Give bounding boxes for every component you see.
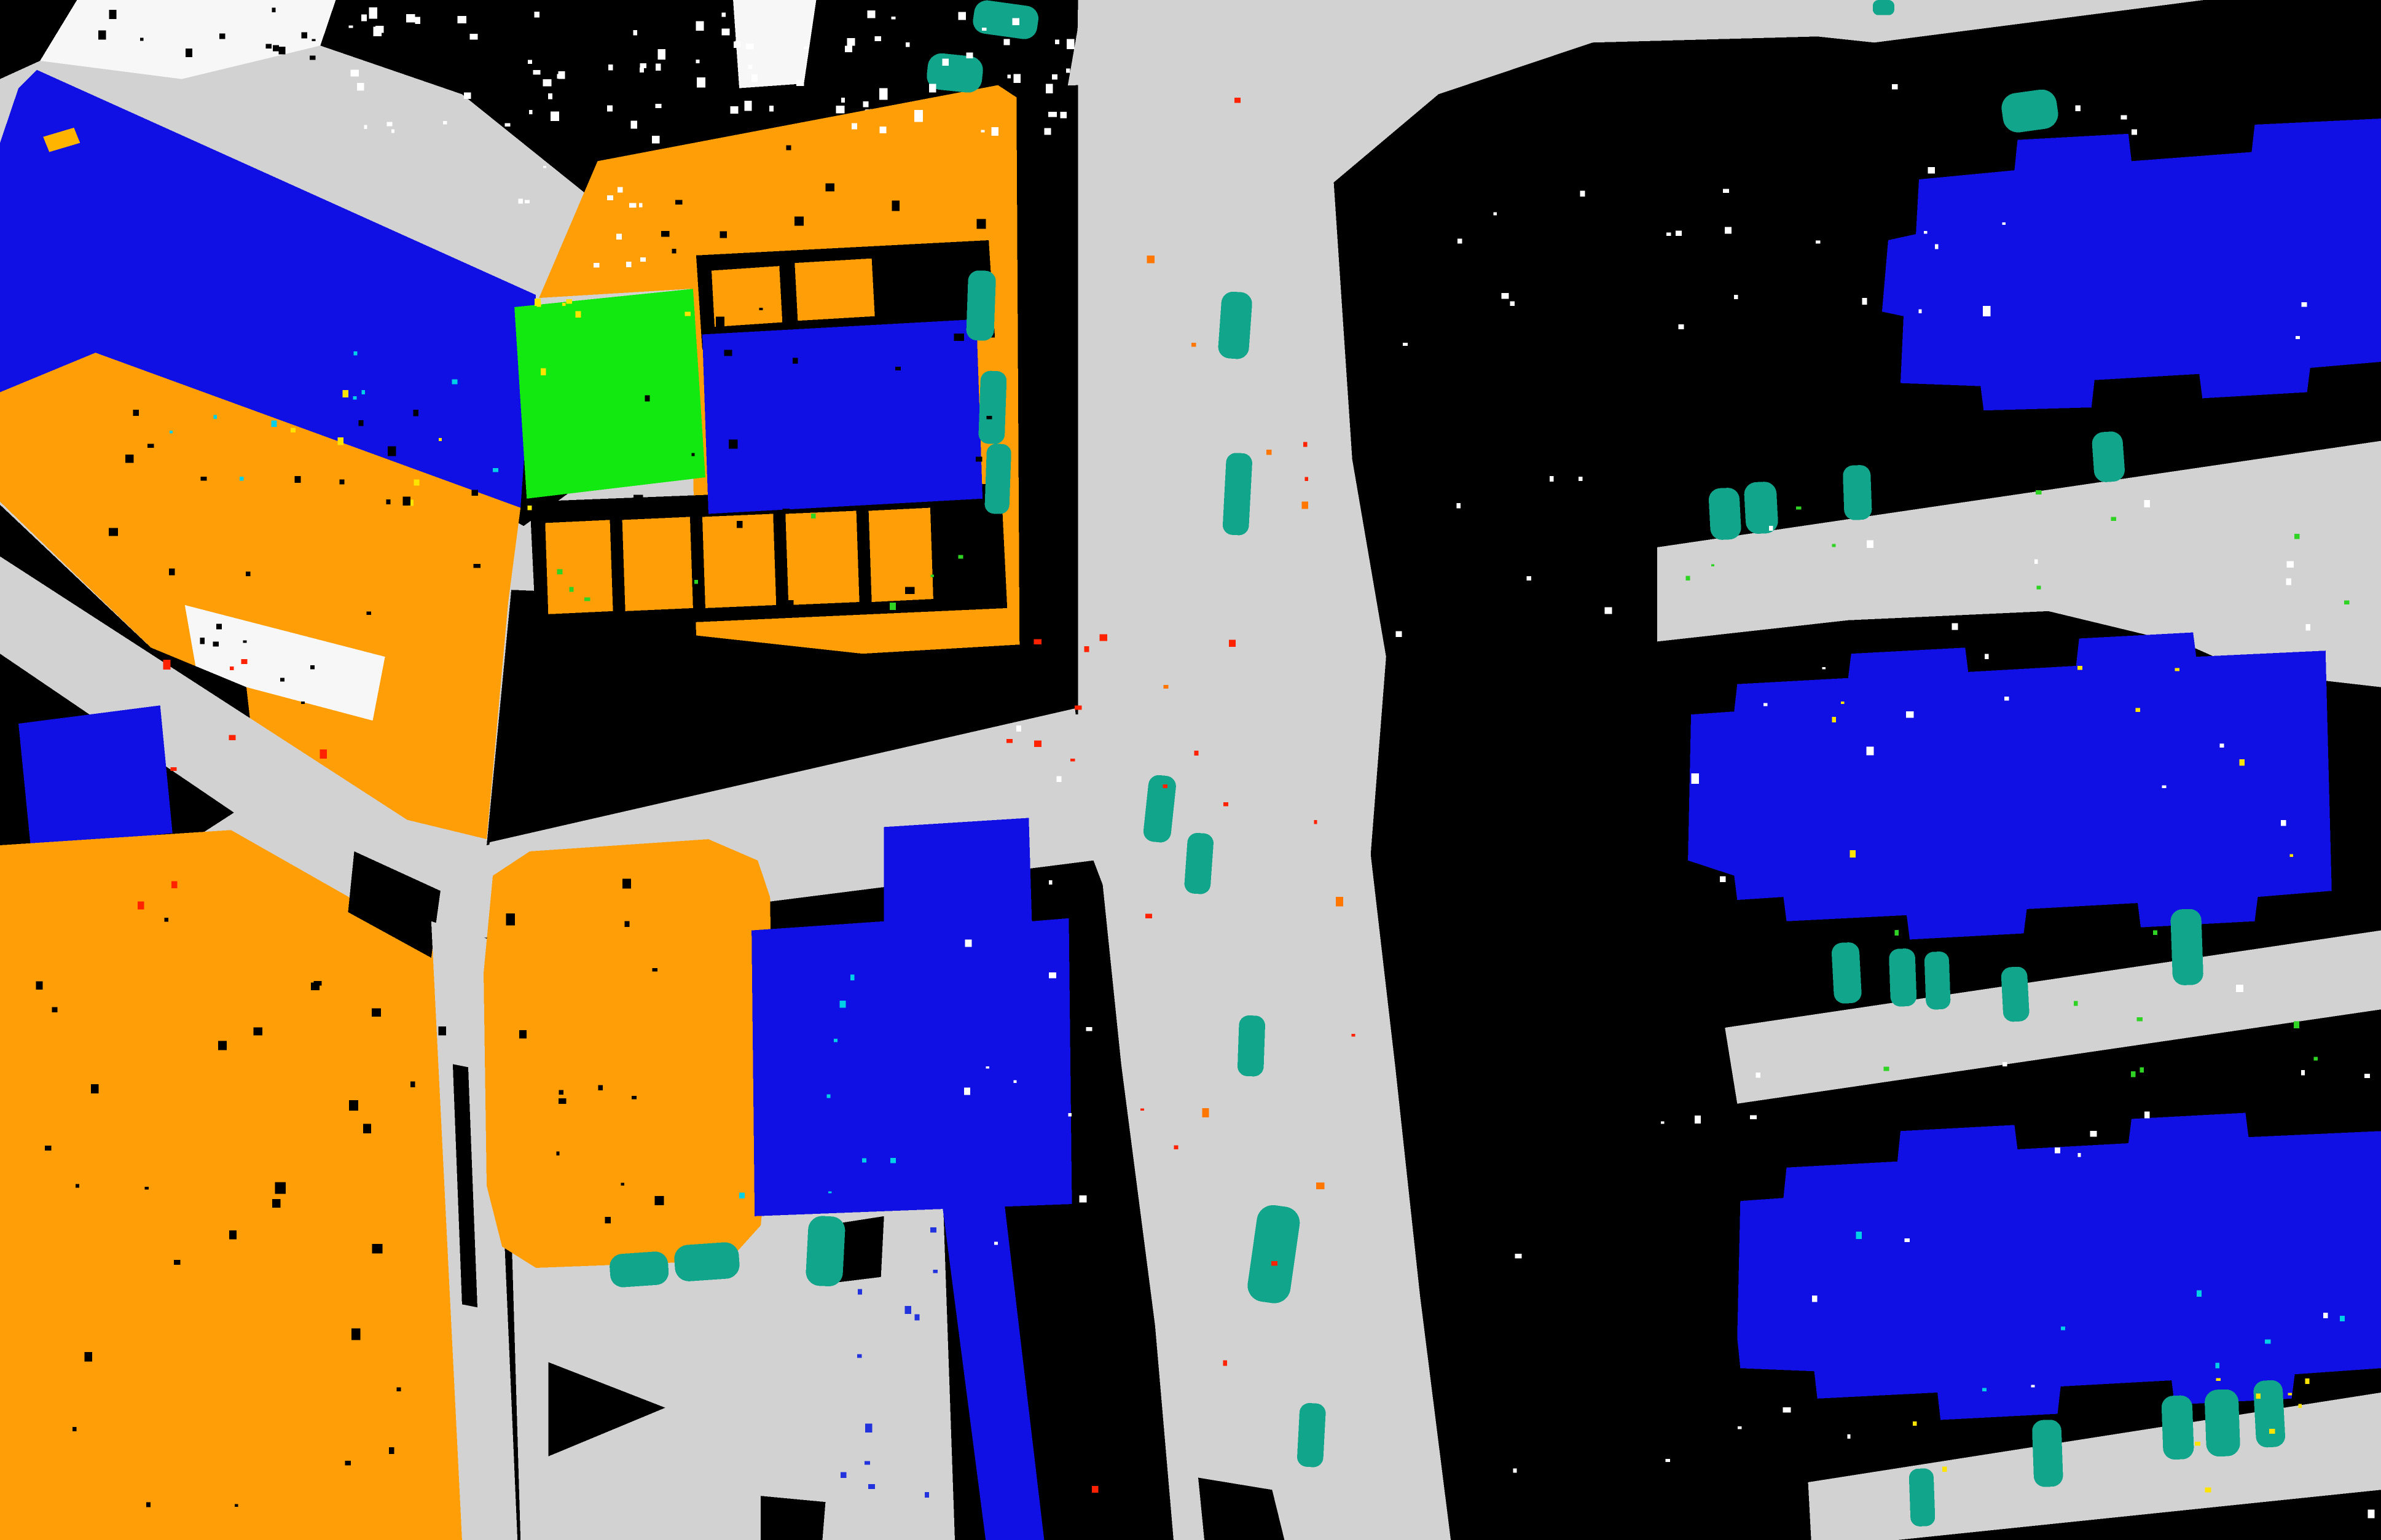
speck [301,702,305,704]
speck [506,913,515,926]
speck [976,456,983,461]
car-row-a-3-icon [1843,465,1872,521]
region-white-patch-top-center [733,0,816,88]
speck [310,55,316,60]
speck [685,312,691,316]
speck [519,1030,527,1039]
speck [1191,343,1196,346]
speck [171,881,178,888]
speck [1832,544,1836,547]
speck [1685,576,1690,580]
car-row-b-2-icon [1889,948,1917,1007]
speck [656,63,661,71]
speck [1147,256,1155,264]
speck [794,217,804,226]
speck [1303,442,1307,447]
speck [720,232,727,238]
speck [2195,1442,2200,1445]
speck [825,183,834,191]
car-road-right-edge-icon [1222,452,1253,536]
speck [1720,877,1725,882]
speck [2132,129,2137,135]
speck [2140,1068,2144,1073]
speck [841,98,845,103]
speck [2136,708,2140,712]
speck [626,262,632,267]
car-row-b-5-icon [2170,909,2203,985]
speck [1862,298,1867,305]
speck [2136,1017,2143,1021]
speck [559,1098,566,1104]
speck [1163,784,1168,788]
speck [1140,1108,1144,1111]
speck [2344,601,2350,605]
speck [1983,306,1991,316]
speck [235,1504,238,1506]
speck [1100,635,1107,641]
speck [2144,500,2151,507]
speck [240,477,244,480]
speck [959,12,966,20]
speck [576,311,581,318]
car-row-a-1-icon [1708,487,1742,541]
car-plaza-3-icon [805,1215,845,1287]
region-blue-flat-roof-left [18,705,173,848]
speck [1692,773,1699,784]
speck [551,112,559,121]
speck [850,975,855,980]
speck [852,123,857,130]
speck [457,16,466,23]
speck [272,1199,281,1208]
speck [406,14,415,22]
speck [640,68,644,72]
speck [858,1289,862,1294]
speck [868,1484,875,1489]
speck [109,10,116,19]
speck [1904,1238,1909,1242]
car-row-b-4-icon [2001,966,2030,1022]
speck [229,735,236,740]
speck [2034,559,2038,564]
speck [410,1081,415,1087]
speck [372,1244,383,1253]
speck [1711,565,1714,566]
speck [672,249,676,253]
speck [2269,1429,2275,1434]
speck [541,368,546,375]
speck [1832,717,1836,722]
speck [125,455,133,463]
speck [857,1354,861,1358]
speck [2294,1021,2299,1028]
speck [2364,1074,2370,1078]
speck [271,421,277,428]
speck [1194,751,1199,756]
speck [391,129,394,133]
speck [2299,1404,2302,1408]
speck [841,1472,847,1478]
speck [1750,1115,1757,1119]
speck [2153,931,2157,935]
speck [675,200,683,205]
speck [2301,302,2307,307]
speck [1665,1459,1669,1462]
speck [1052,74,1057,79]
speck [879,88,888,100]
speck [138,901,144,909]
speck [605,1217,611,1224]
speck [1057,776,1062,782]
speck [535,12,539,17]
speck [1493,213,1497,216]
speck [965,940,972,947]
speck [2290,854,2294,857]
speck [358,420,363,426]
car-road-mid-3-icon [1184,832,1215,895]
speck [361,15,367,21]
speck [1080,1195,1087,1202]
speck [2002,222,2006,225]
speck [2031,1385,2035,1388]
speck [2323,1313,2328,1318]
speck [1229,640,1236,647]
speck [1457,238,1462,243]
speck [1003,39,1010,45]
segmentation-svg [0,0,2381,1540]
speck [1942,1466,1947,1472]
car-complex-edge-2-icon [978,370,1007,444]
speck [294,476,300,483]
region-orange-cell-bottom-5 [869,508,933,602]
speck [2314,1057,2318,1061]
speck [1314,820,1317,824]
speck [631,121,637,129]
speck [186,49,192,57]
speck [52,1007,58,1012]
speck [929,84,936,92]
speck [213,641,219,646]
speck [353,396,356,399]
region-grass-lawn-square [514,289,705,499]
speck [374,26,382,36]
speck [417,937,423,945]
speck [493,468,498,472]
speck [528,60,532,64]
speck [1847,1434,1850,1439]
speck [1006,739,1013,743]
speck [744,101,751,111]
region-orange-cell-bottom-2 [622,517,693,611]
speck [1738,1426,1741,1429]
speck [1302,502,1308,509]
speck [200,477,206,480]
speck [1049,972,1056,979]
speck [351,70,359,77]
speck [624,921,629,927]
car-row-c-1-icon [1908,1468,1935,1526]
speck [357,83,364,90]
speck [696,60,700,63]
speck [1395,631,1402,637]
speck [633,30,638,35]
speck [2162,785,2166,788]
speck [608,64,613,70]
speck [273,45,279,52]
speck [396,1388,401,1391]
speck [1841,702,1845,704]
speck [1913,1421,1917,1426]
speck [1513,1468,1517,1472]
region-orange-cell-bottom-1 [545,520,613,614]
speck [863,101,869,107]
speck [868,10,876,18]
speck [241,659,248,664]
region-black-blob-bottom-center [761,1496,825,1540]
speck [229,1230,237,1240]
speck [2294,534,2299,539]
speck [536,302,541,307]
car-complex-edge-1-icon [966,270,996,341]
speck [1016,725,1021,732]
speck [109,528,118,536]
speck [214,415,218,419]
speck [291,428,296,432]
speck [1604,607,1612,614]
speck [533,70,540,75]
speck [981,130,984,133]
speck [2286,579,2291,585]
speck [1695,1116,1701,1124]
speck [737,521,742,528]
speck [1951,623,1958,630]
speck [639,203,643,207]
speck [834,1039,837,1042]
speck [1763,703,1768,706]
speck [931,575,934,577]
speck [98,31,106,40]
speck [1867,541,1873,548]
speck [845,45,852,52]
speck [782,509,790,514]
speck [925,1492,929,1498]
speck [804,47,809,49]
speck [439,438,442,441]
speck [1202,1108,1209,1117]
speck [45,1146,52,1151]
speck [987,416,992,420]
speck [389,1447,394,1454]
speck [2077,666,2082,670]
speck [759,308,763,310]
speck [1007,75,1011,79]
speck [1666,232,1671,236]
speck [787,600,794,605]
speck [828,1192,831,1194]
speck [1234,98,1241,103]
speck [73,1427,77,1431]
speck [607,106,613,112]
speck [621,1183,624,1186]
speck [1676,230,1682,235]
speck [1174,1146,1178,1150]
speck [992,127,999,136]
speck [739,1192,745,1198]
speck [443,121,447,124]
speck [729,439,738,448]
speck [414,479,419,485]
speck [2061,1327,2065,1331]
speck [2216,1363,2219,1369]
speck [254,1028,262,1036]
car-road-bottom-icon [1296,1402,1326,1468]
speck [914,1315,919,1321]
speck [559,71,565,79]
speck [826,1095,830,1098]
speck [2076,105,2081,111]
speck [1725,227,1732,234]
speck [342,390,348,397]
speck [2002,1062,2007,1066]
speck [1044,128,1051,135]
speck [751,74,758,82]
speck [964,1088,970,1095]
speck [594,263,599,267]
speck [2131,1071,2136,1077]
speck [891,17,895,19]
speck [364,125,367,128]
speck [2205,1487,2211,1492]
speck [633,494,643,502]
speck [349,1100,358,1111]
speck [986,1066,989,1068]
speck [312,39,315,41]
speck [584,597,590,601]
speck [414,410,418,416]
speck [402,496,410,506]
speck [1526,576,1531,580]
speck [1084,646,1089,652]
speck [933,1270,938,1273]
speck [351,1329,361,1340]
speck [640,257,646,262]
speck [362,390,366,394]
speck [386,499,391,504]
speck [559,1090,563,1095]
speck [1034,639,1041,644]
speck [1070,759,1075,761]
speck [836,106,844,113]
speck [1769,526,1773,531]
speck [388,446,396,456]
speck [1723,189,1729,193]
region-orange-cell-bottom-4 [785,511,859,605]
speck [890,1158,896,1163]
speck [1678,324,1684,329]
speck [2175,668,2179,671]
speck [320,749,327,759]
region-blue-building-inner-court [702,319,983,514]
speck [786,145,791,150]
speck [1352,1034,1355,1036]
speck [2287,561,2294,568]
speck [892,201,899,211]
speck [543,79,552,86]
speck [735,41,741,48]
speck [1515,1254,1522,1258]
speck [1884,1067,1889,1071]
speck [219,34,225,39]
speck [2288,1393,2292,1396]
speck [372,1009,381,1017]
speck [1510,301,1515,306]
speck [1075,706,1081,710]
speck [1336,897,1343,907]
car-road-mid-4-icon [1237,1015,1265,1076]
speck [557,569,563,574]
speck [1895,930,1899,936]
speck [1069,1113,1072,1117]
speck [1982,1388,1987,1391]
speck [1403,343,1408,346]
speck [146,1502,151,1507]
speck [1906,711,1913,718]
speck [91,1084,99,1093]
speck [529,110,533,114]
speck [1812,1296,1818,1302]
speck [1223,1360,1227,1366]
speck [694,580,698,584]
speck [2074,1001,2078,1006]
speck [36,982,43,990]
speck [724,350,732,356]
speck [598,1085,603,1091]
speck [1034,741,1041,747]
speck [1046,84,1053,93]
speck [840,1001,846,1008]
speck [1935,244,1939,249]
speck [474,564,481,568]
car-road-mid-1-icon [1217,291,1253,360]
speck [655,104,661,108]
speck [906,42,910,47]
speck [1305,477,1309,480]
speck [2111,517,2116,521]
speck [607,195,613,200]
speck [1550,476,1554,482]
speck [622,878,631,888]
speck [1501,293,1508,299]
speck [1316,1182,1324,1189]
speck [847,38,855,46]
speck [1164,685,1169,689]
speck [2216,1378,2221,1380]
car-top-right-2-icon [1873,0,1894,15]
speck [862,1159,866,1163]
speck [1013,18,1020,25]
speck [618,187,622,192]
car-plaza-1-icon [609,1251,670,1288]
speck [525,200,530,203]
speck [1856,1232,1862,1239]
speck [654,1196,664,1205]
speck [796,80,804,86]
speck [338,437,344,445]
speck [692,453,695,456]
speck [2256,1394,2261,1399]
car-plaza-2-icon [673,1241,740,1283]
speck [1067,39,1074,49]
